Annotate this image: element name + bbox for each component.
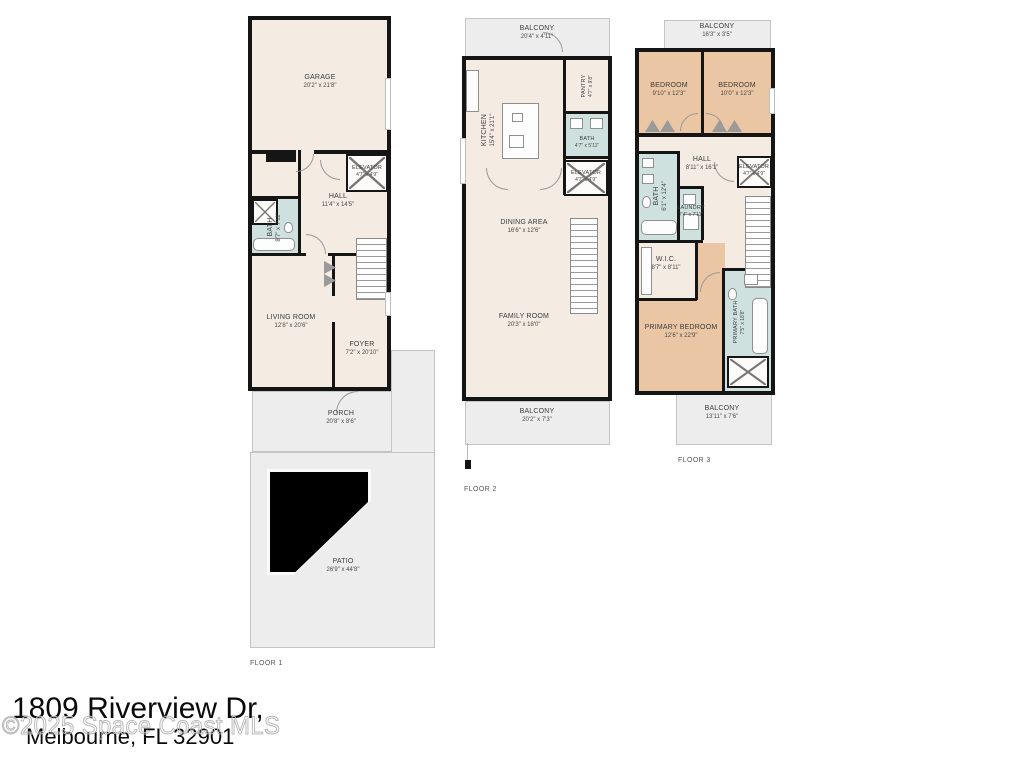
f2-deck-post — [465, 460, 471, 469]
f1-patio-label: PATIO 26'9" x 44'8" — [327, 557, 360, 575]
f3-elevator-label: ELEVATOR 4'7" x 4'9" — [739, 164, 769, 178]
f2-family-room-label: FAMILY ROOM 20'3" x 18'0" — [499, 312, 549, 330]
f1-toilet — [284, 222, 293, 233]
f2-sink — [590, 118, 603, 129]
f3-laundry-sink — [683, 194, 696, 205]
f1-elevator-label: ELEVATOR 4'7" x 4'9" — [352, 165, 382, 179]
f2-dining-area-label: DINING AREA 16'6" x 12'6" — [500, 218, 547, 236]
f1-living-room-label: LIVING ROOM 12'8" x 20'6" — [267, 313, 316, 331]
f1-garage-label: GARAGE 20'2" x 21'8" — [304, 73, 337, 91]
f1-patio-side — [391, 350, 435, 453]
f3-bath-label: BATH 6'1" x 12'4" — [652, 181, 670, 211]
f2-kitchen-island — [502, 103, 539, 159]
f3-wall-bedroom-bottom — [639, 133, 771, 137]
floor2-tag: FLOOR 2 — [464, 486, 497, 493]
f2-cooktop — [512, 113, 523, 122]
f3-pbath-toilet — [728, 288, 737, 300]
f3-wall-bath-top — [639, 151, 679, 154]
f3-hall-label: HALL 8'11" x 16'1" — [686, 155, 718, 173]
f1-porch-label: PORCH 20'8" x 8'6" — [326, 409, 356, 427]
f3-wall-laundry-top — [680, 186, 703, 189]
f3-balcony-bottom-label: BALCONY 13'11" x 7'6" — [705, 404, 740, 422]
f1-foyer-window — [385, 292, 391, 316]
f3-bedroom-right-label: BEDROOM 10'0" x 12'3" — [718, 81, 756, 99]
f2-kitchen-window — [460, 138, 466, 184]
f3-wic-shelves — [641, 247, 652, 295]
f3-tub — [641, 220, 677, 235]
f3-pbath-shower — [727, 356, 769, 388]
f3-bedroom-left-label: BEDROOM 9'10" x 12'3" — [650, 81, 688, 99]
floor1-tag: FLOOR 1 — [250, 660, 283, 667]
floor3-tag: FLOOR 3 — [678, 457, 711, 464]
f3-pbath-sink — [744, 274, 758, 285]
f3-pbath-tub — [752, 298, 768, 354]
f2-stairs — [570, 218, 598, 314]
f3-laundry-label: LAUNDRY 7'4" x 7'11" — [677, 205, 705, 219]
f1-door-gap — [332, 296, 335, 322]
f3-primary-bedroom-label: PRIMARY BEDROOM 12'6" x 22'9" — [645, 323, 718, 341]
f2-kitchen-label: KITCHEN 15'4" x 21'1" — [480, 114, 498, 147]
f3-toilet — [642, 196, 651, 208]
f1-garage-window — [385, 78, 391, 130]
f1-bath-label: BATH 8'7" x 7'11" — [266, 212, 284, 241]
f2-island-sink — [509, 135, 524, 148]
f3-wall-pbath-left — [722, 268, 725, 391]
f3-primary-entry — [698, 243, 725, 301]
f2-sink — [570, 118, 583, 129]
floorplan-page: GARAGE 20'2" x 21'8" ELEVATOR 4'7" x 4'9… — [0, 0, 1024, 768]
f3-bedroom-window — [769, 88, 775, 114]
f3-sink — [642, 158, 654, 168]
f3-wall-wic-top — [639, 240, 703, 243]
f3-balcony-top-label: BALCONY 16'3" x 3'5" — [700, 22, 735, 40]
mls-watermark: ©2025 Space Coast MLS — [2, 712, 280, 741]
f3-wall-bedrooms — [701, 52, 704, 135]
f1-hall-label: HALL 11'4" x 14'5" — [322, 192, 354, 210]
f3-primary-bath-label: PRIMARY BATH 7'5" x 18'8" — [733, 300, 747, 343]
f3-wic-label: W.I.C. 8'7" x 8'11" — [651, 255, 680, 273]
f2-balcony-bottom-label: BALCONY 20'2" x 7'3" — [520, 407, 555, 425]
f2-pantry-label: PANTRY 4'7" x 9'8" — [581, 74, 595, 97]
f3-primary-bedroom — [639, 301, 725, 391]
f2-wall-bath — [566, 156, 608, 159]
f1-wall-chunk — [266, 150, 296, 162]
f2-counter — [466, 70, 479, 112]
f1-foyer-label: FOYER 7'2" x 20'10" — [346, 340, 379, 358]
f2-balcony-top-label: BALCONY 20'4" x 4'11" — [520, 24, 555, 42]
f1-stairs — [356, 238, 387, 300]
f2-elevator-label: ELEVATOR 4'7" x 4'9" — [571, 170, 601, 184]
f2-bath-label: BATH 4'7" x 5'11" — [575, 136, 599, 150]
